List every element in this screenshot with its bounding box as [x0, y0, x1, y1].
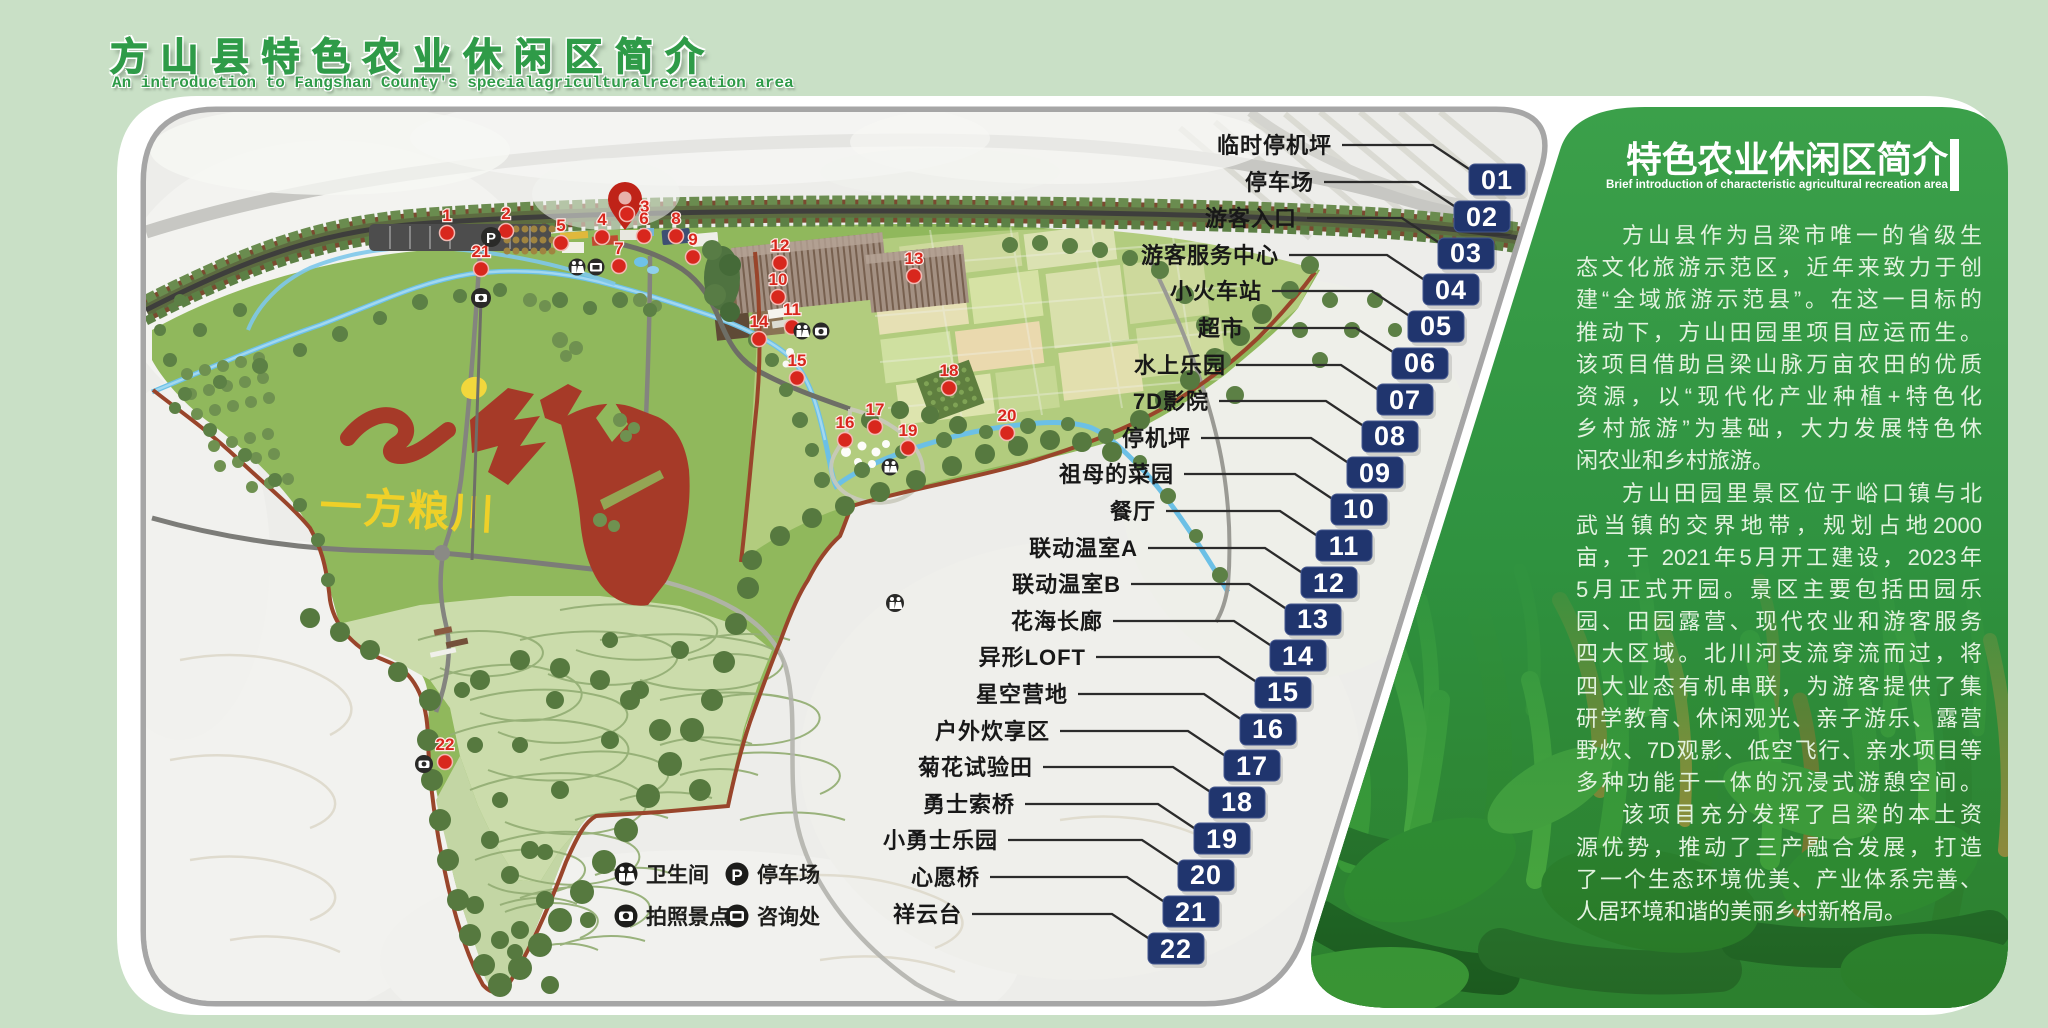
svg-text:07: 07 [1389, 385, 1421, 415]
svg-text:花海长廊: 花海长廊 [1011, 609, 1103, 634]
svg-text:18: 18 [1221, 787, 1253, 817]
svg-text:09: 09 [1359, 458, 1391, 488]
svg-text:超市: 超市 [1198, 316, 1244, 341]
svg-text:水上乐园: 水上乐园 [1134, 353, 1226, 378]
svg-text:拍照景点: 拍照景点 [646, 905, 730, 929]
svg-text:05: 05 [1420, 311, 1452, 341]
svg-text:游客入口: 游客入口 [1205, 206, 1297, 231]
svg-text:19: 19 [899, 421, 918, 440]
svg-text:06: 06 [1404, 348, 1436, 378]
svg-text:特色农业休闲区简介: 特色农业休闲区简介 [1626, 139, 1949, 180]
svg-text:2: 2 [501, 204, 510, 223]
svg-text:咨询处: 咨询处 [757, 905, 820, 929]
svg-text:12: 12 [1313, 568, 1345, 598]
svg-text:菊花试验田: 菊花试验田 [918, 755, 1033, 780]
svg-text:14: 14 [750, 312, 769, 331]
svg-text:勇士索桥: 勇士索桥 [923, 792, 1015, 817]
svg-text:一方粮川: 一方粮川 [318, 482, 496, 538]
svg-text:户外炊享区: 户外炊享区 [935, 719, 1050, 744]
svg-text:停车场: 停车场 [757, 863, 820, 887]
svg-text:异形LOFT: 异形LOFT [979, 645, 1086, 670]
svg-text:10: 10 [769, 270, 788, 289]
svg-text:6: 6 [639, 209, 648, 228]
svg-text:游客服务中心: 游客服务中心 [1141, 243, 1279, 268]
svg-text:21: 21 [1175, 897, 1207, 927]
svg-text:餐厅: 餐厅 [1110, 499, 1156, 524]
svg-text:16: 16 [836, 413, 855, 432]
svg-text:11: 11 [783, 300, 801, 319]
svg-text:小勇士乐园: 小勇士乐园 [883, 828, 998, 853]
svg-text:联动温室B: 联动温室B [1012, 572, 1121, 597]
svg-text:祥云台: 祥云台 [893, 902, 962, 927]
svg-text:18: 18 [940, 361, 959, 380]
svg-text:04: 04 [1435, 275, 1467, 305]
svg-text:15: 15 [1267, 677, 1299, 707]
svg-text:7: 7 [614, 239, 623, 258]
svg-text:16: 16 [1252, 714, 1284, 744]
svg-text:13: 13 [1297, 604, 1329, 634]
svg-text:星空营地: 星空营地 [976, 682, 1068, 707]
svg-text:17: 17 [866, 400, 885, 419]
svg-text:P: P [731, 866, 742, 885]
svg-text:20: 20 [998, 406, 1017, 425]
svg-text:5: 5 [556, 216, 565, 235]
svg-text:01: 01 [1481, 165, 1513, 195]
svg-text:心愿桥: 心愿桥 [911, 865, 980, 890]
svg-text:03: 03 [1450, 238, 1482, 268]
svg-text:15: 15 [788, 351, 807, 370]
svg-text:11: 11 [1329, 531, 1360, 561]
svg-text:卫生间: 卫生间 [646, 863, 709, 887]
svg-text:祖母的菜园: 祖母的菜园 [1059, 462, 1174, 487]
svg-text:10: 10 [1343, 494, 1375, 524]
svg-text:联动温室A: 联动温室A [1029, 536, 1138, 561]
svg-text:17: 17 [1236, 751, 1268, 781]
svg-text:08: 08 [1374, 421, 1406, 451]
svg-text:19: 19 [1206, 824, 1238, 854]
svg-text:7D影院: 7D影院 [1133, 389, 1209, 414]
svg-text:12: 12 [771, 236, 790, 255]
svg-text:8: 8 [671, 209, 680, 228]
svg-text:02: 02 [1466, 202, 1498, 232]
svg-text:小火车站: 小火车站 [1170, 279, 1262, 304]
svg-text:Brief introduction of characte: Brief introduction of characteristic agr… [1606, 177, 1948, 191]
svg-text:22: 22 [436, 735, 455, 754]
svg-text:9: 9 [688, 230, 697, 249]
svg-text:13: 13 [905, 249, 924, 268]
svg-text:停机坪: 停机坪 [1122, 426, 1191, 451]
svg-text:1: 1 [442, 206, 451, 225]
svg-text:22: 22 [1160, 934, 1192, 964]
svg-text:停车场: 停车场 [1245, 170, 1314, 195]
svg-text:20: 20 [1190, 860, 1222, 890]
svg-text:14: 14 [1282, 641, 1314, 671]
svg-text:P: P [486, 230, 496, 247]
svg-text:临时停机坪: 临时停机坪 [1217, 133, 1332, 158]
svg-text:4: 4 [597, 210, 607, 229]
